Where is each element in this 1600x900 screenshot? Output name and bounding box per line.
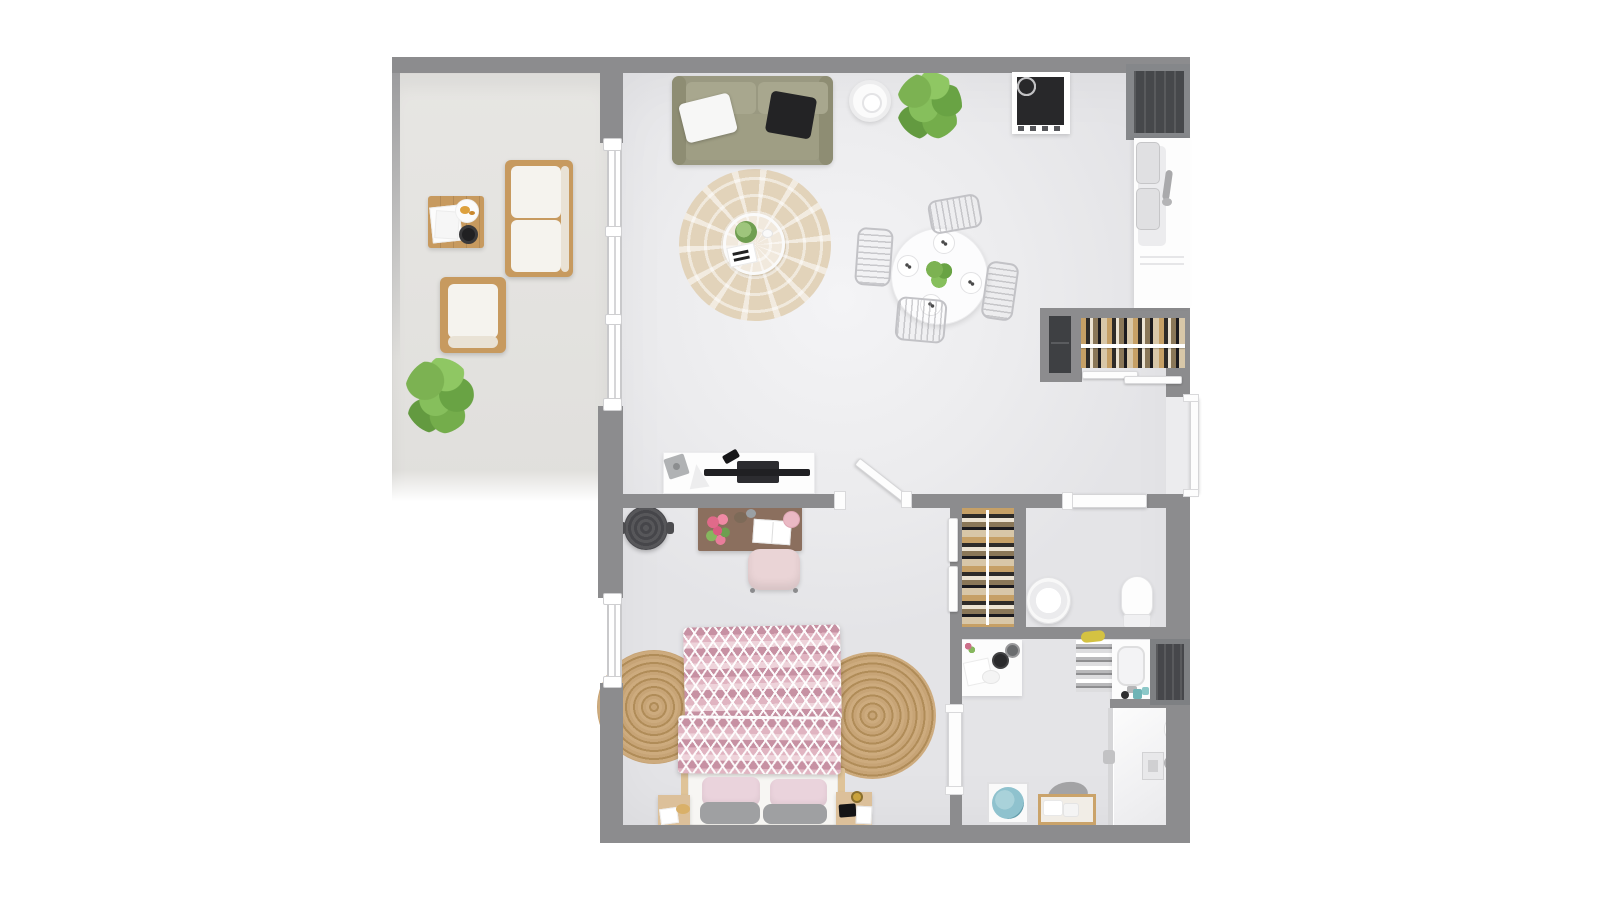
place-setting xyxy=(897,255,919,277)
entry-opening xyxy=(1166,397,1190,494)
cup xyxy=(762,229,773,238)
shower-glass-panel xyxy=(1108,708,1113,825)
clothes-rail xyxy=(1081,344,1185,348)
teal-bottle xyxy=(1142,687,1149,695)
door-frame-cap xyxy=(901,491,912,508)
back-cushion xyxy=(448,336,498,348)
gray-pillow xyxy=(763,804,827,824)
shower-door-handle xyxy=(1103,750,1115,764)
tall-unit-front xyxy=(1134,71,1184,133)
wall-left-lower xyxy=(600,683,623,843)
balcony-plant xyxy=(404,358,474,434)
black-pillow xyxy=(765,90,818,139)
soap-dispenser xyxy=(1121,691,1129,699)
wall-left-middle xyxy=(598,406,623,598)
sink-basin xyxy=(1136,188,1160,230)
clothes-rail xyxy=(986,510,989,625)
shower-drain xyxy=(1142,752,1164,780)
chair-leg xyxy=(793,588,798,593)
table-lamp xyxy=(851,791,863,803)
wall-bedroom-divider xyxy=(622,494,838,508)
cooktop xyxy=(1012,72,1070,134)
balcony-sliding-door xyxy=(607,142,622,408)
wall-left-upper xyxy=(600,73,623,143)
faucet-base xyxy=(1162,198,1172,206)
gray-pillow xyxy=(700,802,760,824)
wc-door xyxy=(1071,494,1147,508)
mini-flower xyxy=(964,642,976,654)
seat-cushion xyxy=(448,284,498,338)
bedroom-window xyxy=(607,595,622,685)
toilet xyxy=(1121,576,1153,618)
door-frame-cap xyxy=(1183,394,1199,402)
round-basin xyxy=(1026,577,1071,624)
flower-bouquet xyxy=(704,512,734,546)
hand-mirror xyxy=(1005,643,1020,658)
pink-pillow xyxy=(770,779,827,807)
wall-bottom xyxy=(600,825,1190,843)
dining-chair xyxy=(854,227,894,287)
window-handle xyxy=(605,314,622,325)
window-handle xyxy=(605,226,622,237)
door-frame-cap xyxy=(834,491,846,510)
folded-towel xyxy=(1043,800,1063,816)
small-item xyxy=(676,804,690,814)
door-frame-cap xyxy=(1183,489,1199,497)
drawer-line xyxy=(1140,256,1184,258)
door-frame-cap xyxy=(945,786,964,795)
balcony-edge xyxy=(392,73,400,363)
towel-basket xyxy=(987,782,1029,824)
dining-chair xyxy=(894,296,948,344)
tall-kitchen-unit xyxy=(1126,64,1190,140)
place-setting xyxy=(960,272,982,294)
sliding-door xyxy=(1124,376,1182,384)
black-bowl xyxy=(459,225,478,244)
sliding-door xyxy=(948,518,958,562)
wall-bedroom-wardrobe-right xyxy=(1014,508,1026,627)
alarm-clock xyxy=(839,803,857,817)
floor-plan xyxy=(0,0,1600,900)
tv-screen xyxy=(704,469,810,476)
seat-cushion xyxy=(511,220,561,272)
window-handle xyxy=(603,593,622,605)
plate-with-pastry xyxy=(455,199,479,223)
entry-door xyxy=(1190,397,1199,494)
teal-bottle xyxy=(1133,689,1142,699)
storage-basket xyxy=(624,506,668,550)
outdoor-armchair xyxy=(440,277,506,353)
table-plant xyxy=(924,259,954,289)
duvet-fold xyxy=(678,715,841,774)
door-frame-cap xyxy=(945,704,964,713)
back-cushion xyxy=(561,166,569,272)
outdoor-sofa xyxy=(505,160,573,277)
basket-handle xyxy=(666,522,674,534)
succulent-plant xyxy=(735,221,757,243)
pink-box xyxy=(783,511,800,528)
wall-hallway-right xyxy=(1147,494,1166,508)
wall-top xyxy=(392,57,1190,73)
window-handle xyxy=(603,138,622,151)
wall-bathroom-divider xyxy=(950,627,1190,639)
balcony-floor-fade xyxy=(392,470,608,504)
kitchen-counter xyxy=(1134,138,1190,308)
sliding-door xyxy=(948,566,958,612)
cabinet-front xyxy=(1156,644,1184,700)
sofa xyxy=(672,76,833,165)
seat-cushion xyxy=(511,166,561,218)
bathroom-cabinet xyxy=(1150,639,1190,705)
triangle-decor xyxy=(686,463,709,490)
dish xyxy=(982,670,1000,684)
potted-plant xyxy=(896,72,962,140)
window-handle xyxy=(603,398,622,411)
drawer-line xyxy=(1140,263,1184,265)
door-frame-cap xyxy=(1062,492,1073,510)
chair-leg xyxy=(750,588,755,593)
window-handle xyxy=(603,676,622,688)
wall-hallway xyxy=(908,494,1072,508)
toilet-tank xyxy=(1123,614,1151,628)
sink-basin xyxy=(1136,142,1160,184)
towel-shelf xyxy=(1038,794,1096,825)
book xyxy=(856,806,873,825)
hall-wardrobe-clothes xyxy=(1081,318,1185,368)
cooktop-knobs xyxy=(1018,126,1064,131)
folded-towel xyxy=(1063,803,1079,817)
duvet xyxy=(683,624,842,723)
burner xyxy=(1017,77,1036,96)
desk-cup xyxy=(746,509,756,518)
desk-chair xyxy=(748,549,800,590)
striped-towel xyxy=(1076,640,1112,692)
side-table xyxy=(849,80,891,122)
place-setting xyxy=(933,232,955,254)
bathroom-door xyxy=(948,710,962,790)
basin xyxy=(1117,646,1145,686)
blue-towel xyxy=(992,787,1024,819)
wardrobe-mirror-panel xyxy=(1049,316,1071,373)
